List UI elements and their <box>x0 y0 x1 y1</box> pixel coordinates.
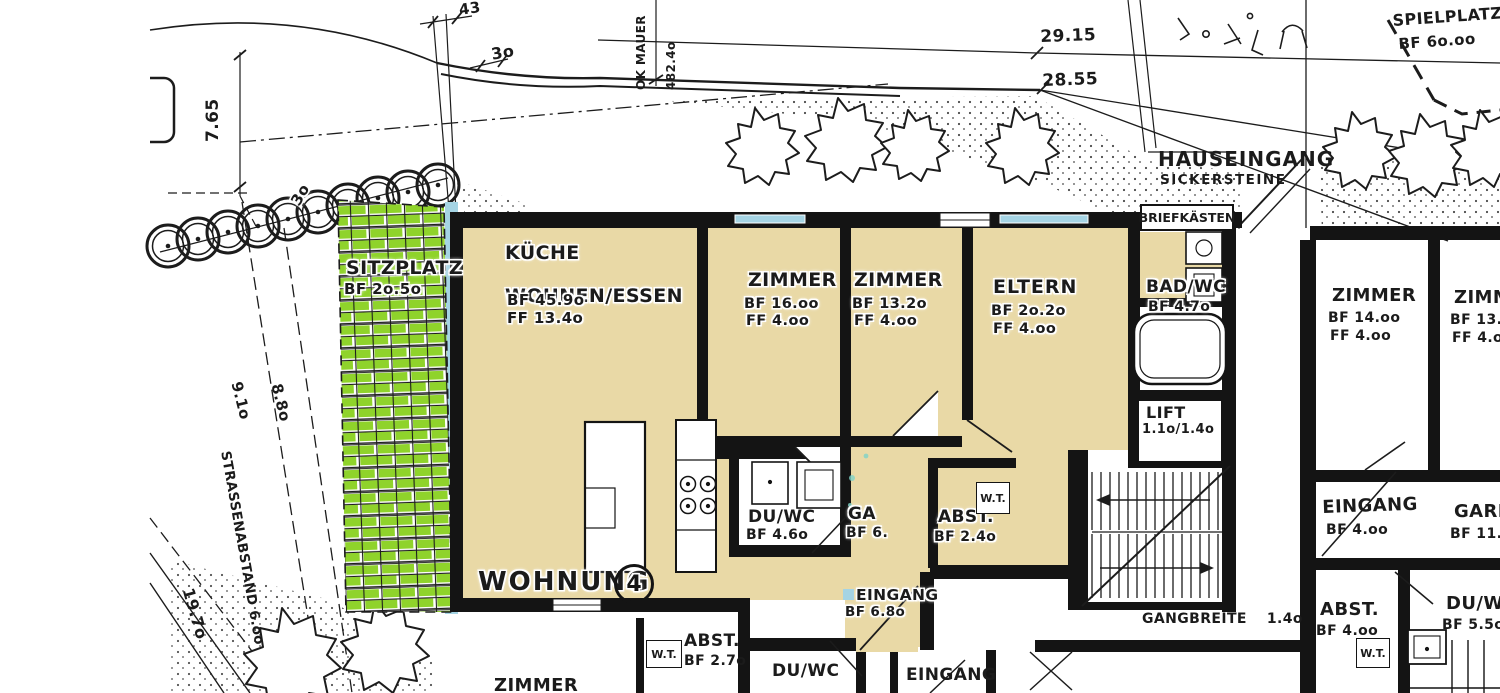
room-kueche-ff: FF 13.4o <box>507 310 583 327</box>
room-zimmer1-ff: FF 4.oo <box>746 313 809 329</box>
gangbreite-value: 1.4o <box>1267 611 1303 627</box>
kueche-line1: KÜCHE <box>505 242 580 264</box>
dim-7-65: 7.65 <box>204 98 223 142</box>
room-eingang-label: EINGANG <box>856 587 939 604</box>
room-lift-label: LIFT <box>1146 404 1186 422</box>
room-duwc-label: DU/WC <box>748 508 815 527</box>
sitzplatz-bf: BF 2o.5o <box>344 281 421 298</box>
room-zimmer1-label: ZIMMER <box>748 270 837 291</box>
room-eltern-bf: BF 2o.2o <box>991 303 1066 319</box>
right-abst-label: ABST. <box>1320 600 1379 620</box>
right-zimmer1-bf: BF 14.oo <box>1328 311 1400 327</box>
dim-ok-mauer: OK MAUER 482.4o <box>634 15 679 90</box>
bottom-abst-label: ABST. <box>684 632 740 651</box>
room-badwc-bf: BF 4.7o <box>1148 300 1210 316</box>
room-gang-bf: BF 6. <box>846 526 888 542</box>
room-zimmer2-bf: BF 13.2o <box>852 296 927 312</box>
right-zimmer2-ff: FF 4.oo <box>1452 331 1500 347</box>
playground-sketch <box>1178 13 1307 55</box>
room-zimmer2-ff: FF 4.oo <box>854 313 917 329</box>
right-zimmer1-ff: FF 4.oo <box>1330 329 1391 345</box>
ok-mauer-line2: 482.4o <box>664 41 678 90</box>
bottom-eingang-label: EINGANG <box>906 666 996 685</box>
ok-mauer-line1: OK MAUER <box>634 15 648 90</box>
room-badwc-label: BAD/WC <box>1146 278 1226 297</box>
dim-30-top: 3o <box>490 42 516 64</box>
dim-29-15: 29.15 <box>1040 26 1096 47</box>
dim-28-55: 28.55 <box>1042 70 1098 91</box>
right-duwc-label: DU/WC <box>1446 594 1500 614</box>
right-zimmer2-label: ZIMMER <box>1454 288 1500 308</box>
room-eltern-ff: FF 4.oo <box>993 321 1056 337</box>
bottom-abst-bf: BF 2.7o <box>684 654 746 670</box>
gangbreite-text: GANGBREITE <box>1142 611 1247 627</box>
stairs <box>1082 466 1230 606</box>
right-duwc-bf: BF 5.5o <box>1442 618 1500 634</box>
floorplan-drawing <box>0 0 1500 693</box>
room-duwc-bf: BF 4.6o <box>746 528 808 544</box>
right-eingang-bf: BF 4.oo <box>1326 523 1388 539</box>
wt-box-abst: W.T. <box>976 482 1010 514</box>
floorplan-canvas: 7.65 43 3o OK MAUER 482.4o 29.15 28.55 S… <box>0 0 1500 693</box>
hauseingang-label: HAUSEINGANG <box>1158 148 1334 170</box>
room-abst-bf: BF 2.4o <box>934 530 996 546</box>
tree-canopy <box>726 108 799 185</box>
bathtub-icon <box>1134 314 1226 384</box>
wt-box-bottom-abst: W.T. <box>646 640 682 668</box>
dim-43: 43 <box>458 0 482 19</box>
entry-window-mark <box>843 589 854 600</box>
right-eingang-label: EINGANG <box>1322 495 1418 518</box>
room-kueche-bf: BF 45.9o <box>507 292 584 309</box>
briefkaesten-box: BRIEFKÄSTEN <box>1140 204 1234 231</box>
room-lift-dim: 1.1o/1.4o <box>1142 423 1214 438</box>
room-eingang-bf: BF 6.8o <box>845 605 905 620</box>
sink-icon <box>1186 232 1222 264</box>
right-zimmer1-label: ZIMMER <box>1332 286 1416 306</box>
wohnung-number-badge: 4 <box>614 564 654 604</box>
bottom-zimmer-label: ZIMMER <box>494 676 578 693</box>
wt-box-right-abst: W.T. <box>1356 638 1390 668</box>
room-zimmer1-bf: BF 16.oo <box>744 296 819 312</box>
room-eltern-label: ELTERN <box>993 277 1077 298</box>
right-gard-label: GARD. <box>1454 502 1500 522</box>
sickersteine-label: SICKERSTEINE <box>1160 173 1286 188</box>
right-gard-bf: BF 11.9o <box>1450 527 1500 543</box>
right-zimmer2-bf: BF 13.oo <box>1450 313 1500 329</box>
gangbreite-label: GANGBREITE1.4o <box>1142 612 1303 628</box>
room-zimmer2-label: ZIMMER <box>854 270 943 291</box>
room-gang-label: GA <box>848 505 876 524</box>
bottom-duwc-label: DU/WC <box>772 662 839 681</box>
sitzplatz-label: SITZPLATZ <box>346 258 463 279</box>
